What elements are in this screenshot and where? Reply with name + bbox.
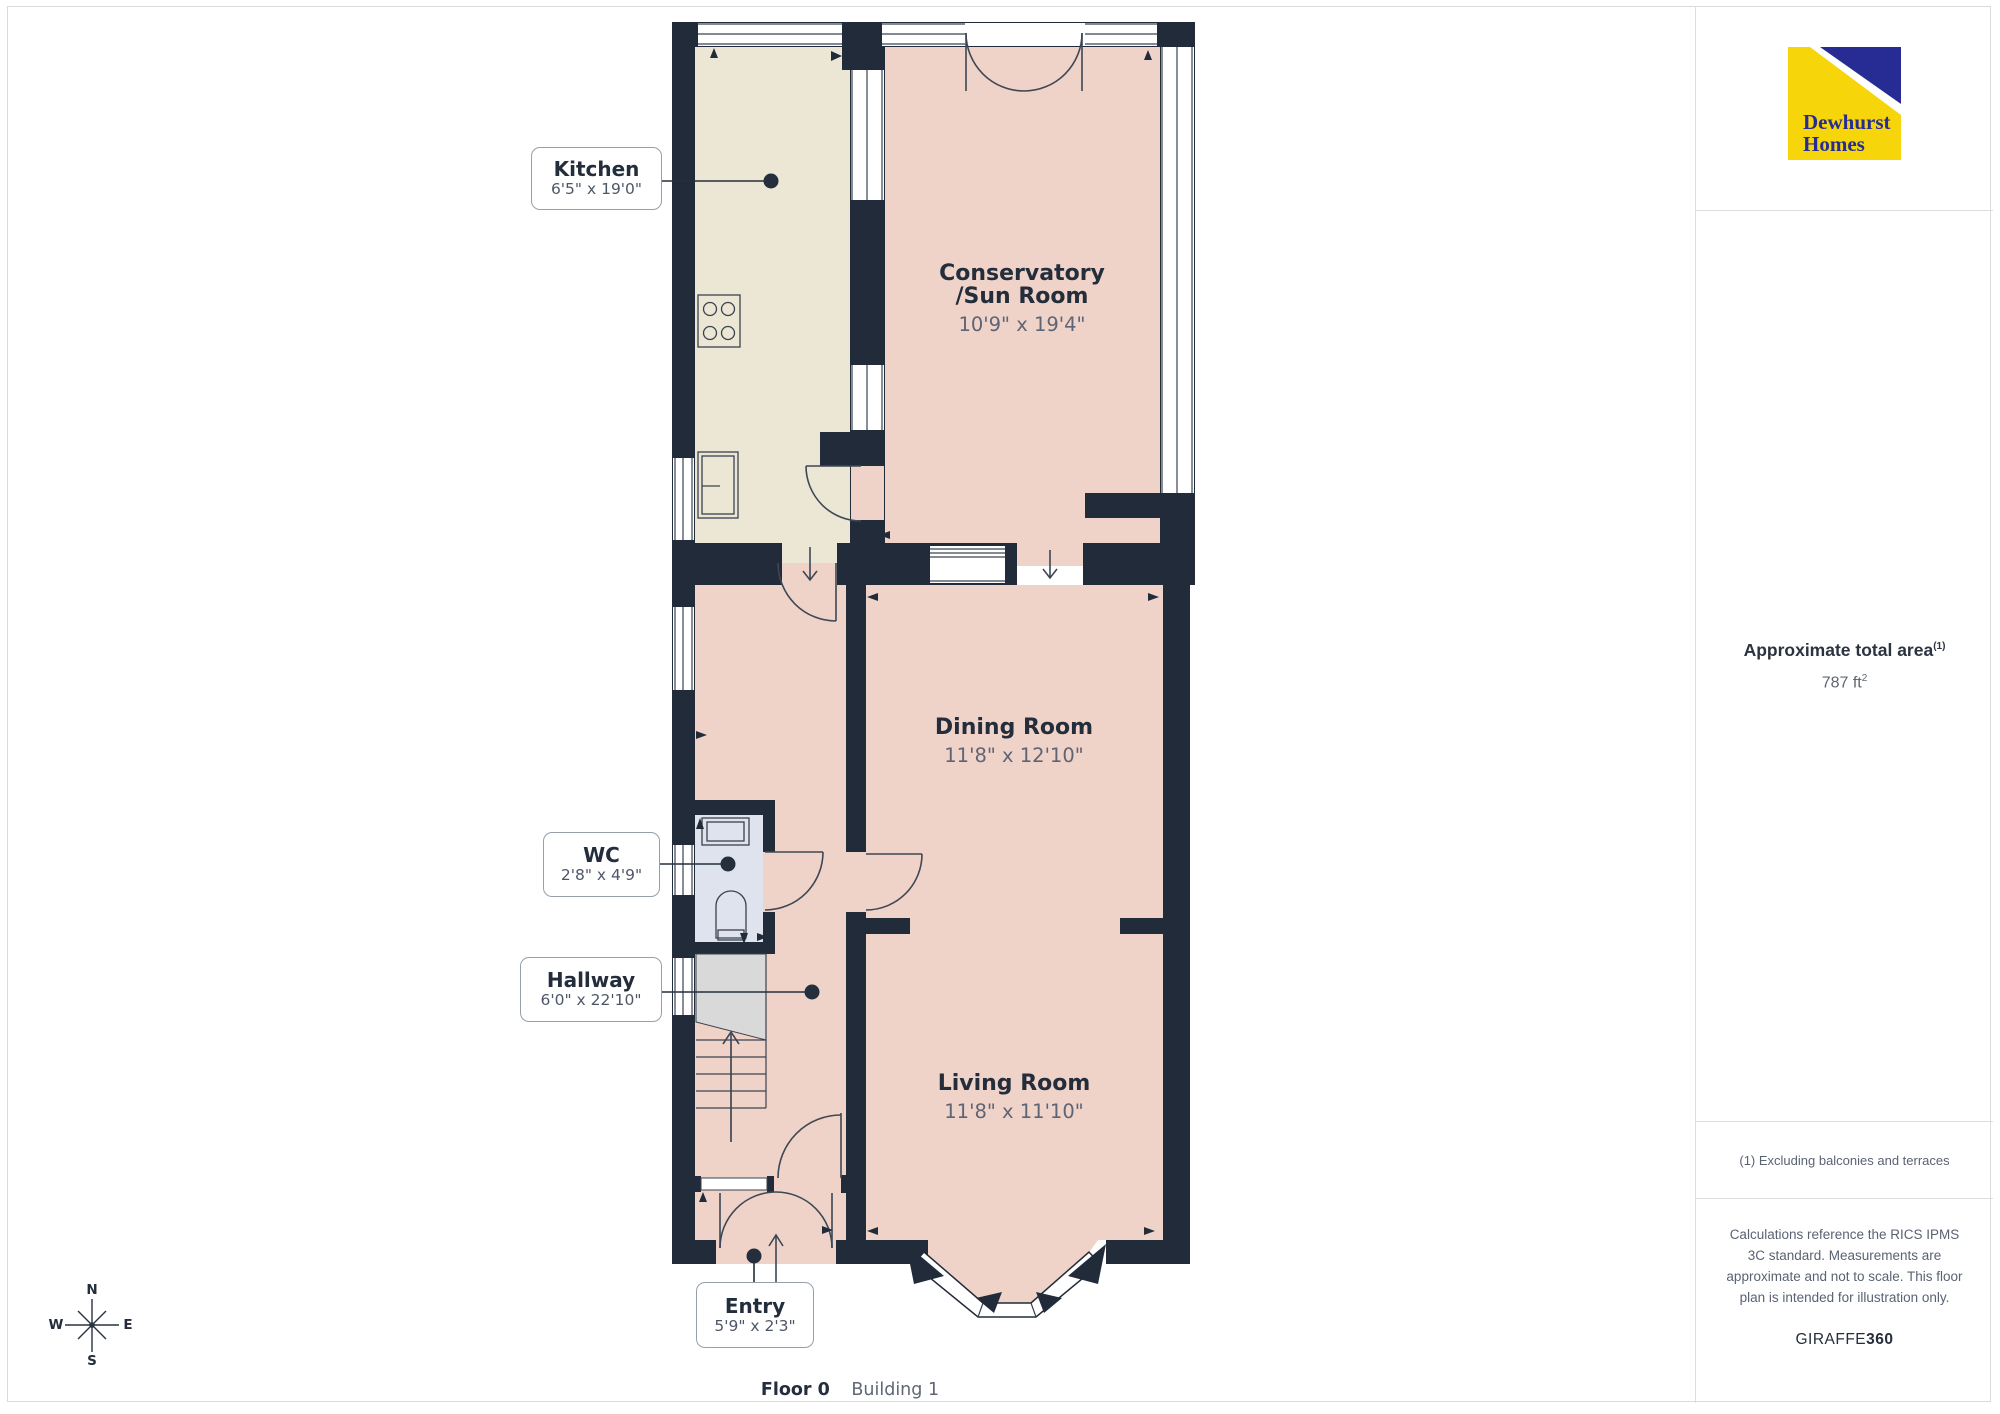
compass-rose-icon — [65, 1299, 119, 1352]
total-area-title: Approximate total area(1) — [1744, 640, 1946, 661]
sidebar: Dewhurst Homes Approximate total area(1)… — [1695, 6, 1993, 1403]
total-area-footnote-marker: (1) — [1933, 641, 1945, 652]
logo-section: Dewhurst Homes — [1696, 6, 1993, 210]
wc-dims: 2'8" x 4'9" — [561, 868, 642, 884]
logo-text: Dewhurst Homes — [1803, 111, 1891, 155]
total-area-value: 787 ft2 — [1822, 673, 1868, 692]
total-area-section: Approximate total area(1) 787 ft2 — [1696, 210, 1993, 1121]
dining-room-dims: 11'8" x 12'10" — [935, 746, 1093, 766]
entry-callout: Entry 5'9" x 2'3" — [696, 1282, 814, 1348]
giraffe-360-text: 360 — [1866, 1331, 1893, 1348]
wc-name: WC — [583, 845, 620, 865]
living-room-dims: 11'8" x 11'10" — [938, 1102, 1091, 1122]
compass-east-label: E — [123, 1317, 132, 1333]
compass-south-label: S — [87, 1353, 97, 1369]
entry-dims: 5'9" x 2'3" — [714, 1319, 795, 1335]
conservatory-name-line2: /Sun Room — [939, 285, 1105, 308]
compass-west-label: W — [49, 1317, 64, 1333]
footnote-section: (1) Excluding balconies and terraces — [1696, 1121, 1993, 1198]
compass-north-label: N — [86, 1282, 97, 1298]
room-floors — [695, 47, 1163, 1305]
entry-name: Entry — [725, 1296, 785, 1316]
hallway-dims: 6'0" x 22'10" — [541, 993, 642, 1009]
living-room-name: Living Room — [938, 1072, 1091, 1095]
conservatory-dims: 10'9" x 19'4" — [939, 315, 1105, 335]
hallway-callout: Hallway 6'0" x 22'10" — [520, 957, 662, 1022]
total-area-label: Approximate total area — [1744, 640, 1934, 660]
kitchen-dims: 6'5" x 19'0" — [551, 182, 642, 198]
dining-room-name: Dining Room — [935, 716, 1093, 739]
footnote-text: (1) Excluding balconies and terraces — [1739, 1153, 1949, 1168]
wc-callout: WC 2'8" x 4'9" — [543, 832, 660, 897]
living-room-label: Living Room 11'8" x 11'10" — [938, 1072, 1091, 1122]
total-area-unit-sup: 2 — [1862, 673, 1868, 684]
total-area-number: 787 ft — [1822, 674, 1862, 691]
building-label: Building 1 — [851, 1380, 939, 1400]
floor-indicator: Floor 0 Building 1 — [761, 1380, 939, 1400]
giraffe-text: GIRAFFE — [1795, 1331, 1866, 1348]
floor-label: Floor 0 — [761, 1380, 830, 1400]
kitchen-callout: Kitchen 6'5" x 19'0" — [531, 147, 662, 210]
dewhurst-homes-logo: Dewhurst Homes — [1788, 47, 1901, 160]
dining-room-label: Dining Room 11'8" x 12'10" — [935, 716, 1093, 766]
logo-text-line2: Homes — [1803, 133, 1891, 155]
conservatory-label: Conservatory /Sun Room 10'9" x 19'4" — [939, 262, 1105, 335]
floorplan-page: Kitchen 6'5" x 19'0" WC 2'8" x 4'9" Hall… — [0, 0, 2000, 1414]
giraffe360-brandmark: GIRAFFE360 — [1696, 1331, 1993, 1349]
logo-text-line1: Dewhurst — [1803, 111, 1891, 133]
kitchen-name: Kitchen — [554, 159, 640, 179]
conservatory-name-line1: Conservatory — [939, 262, 1105, 285]
hallway-name: Hallway — [547, 970, 635, 990]
disclaimer-text: Calculations reference the RICS IPMS 3C … — [1723, 1225, 1967, 1309]
disclaimer-section: Calculations reference the RICS IPMS 3C … — [1696, 1198, 1993, 1403]
